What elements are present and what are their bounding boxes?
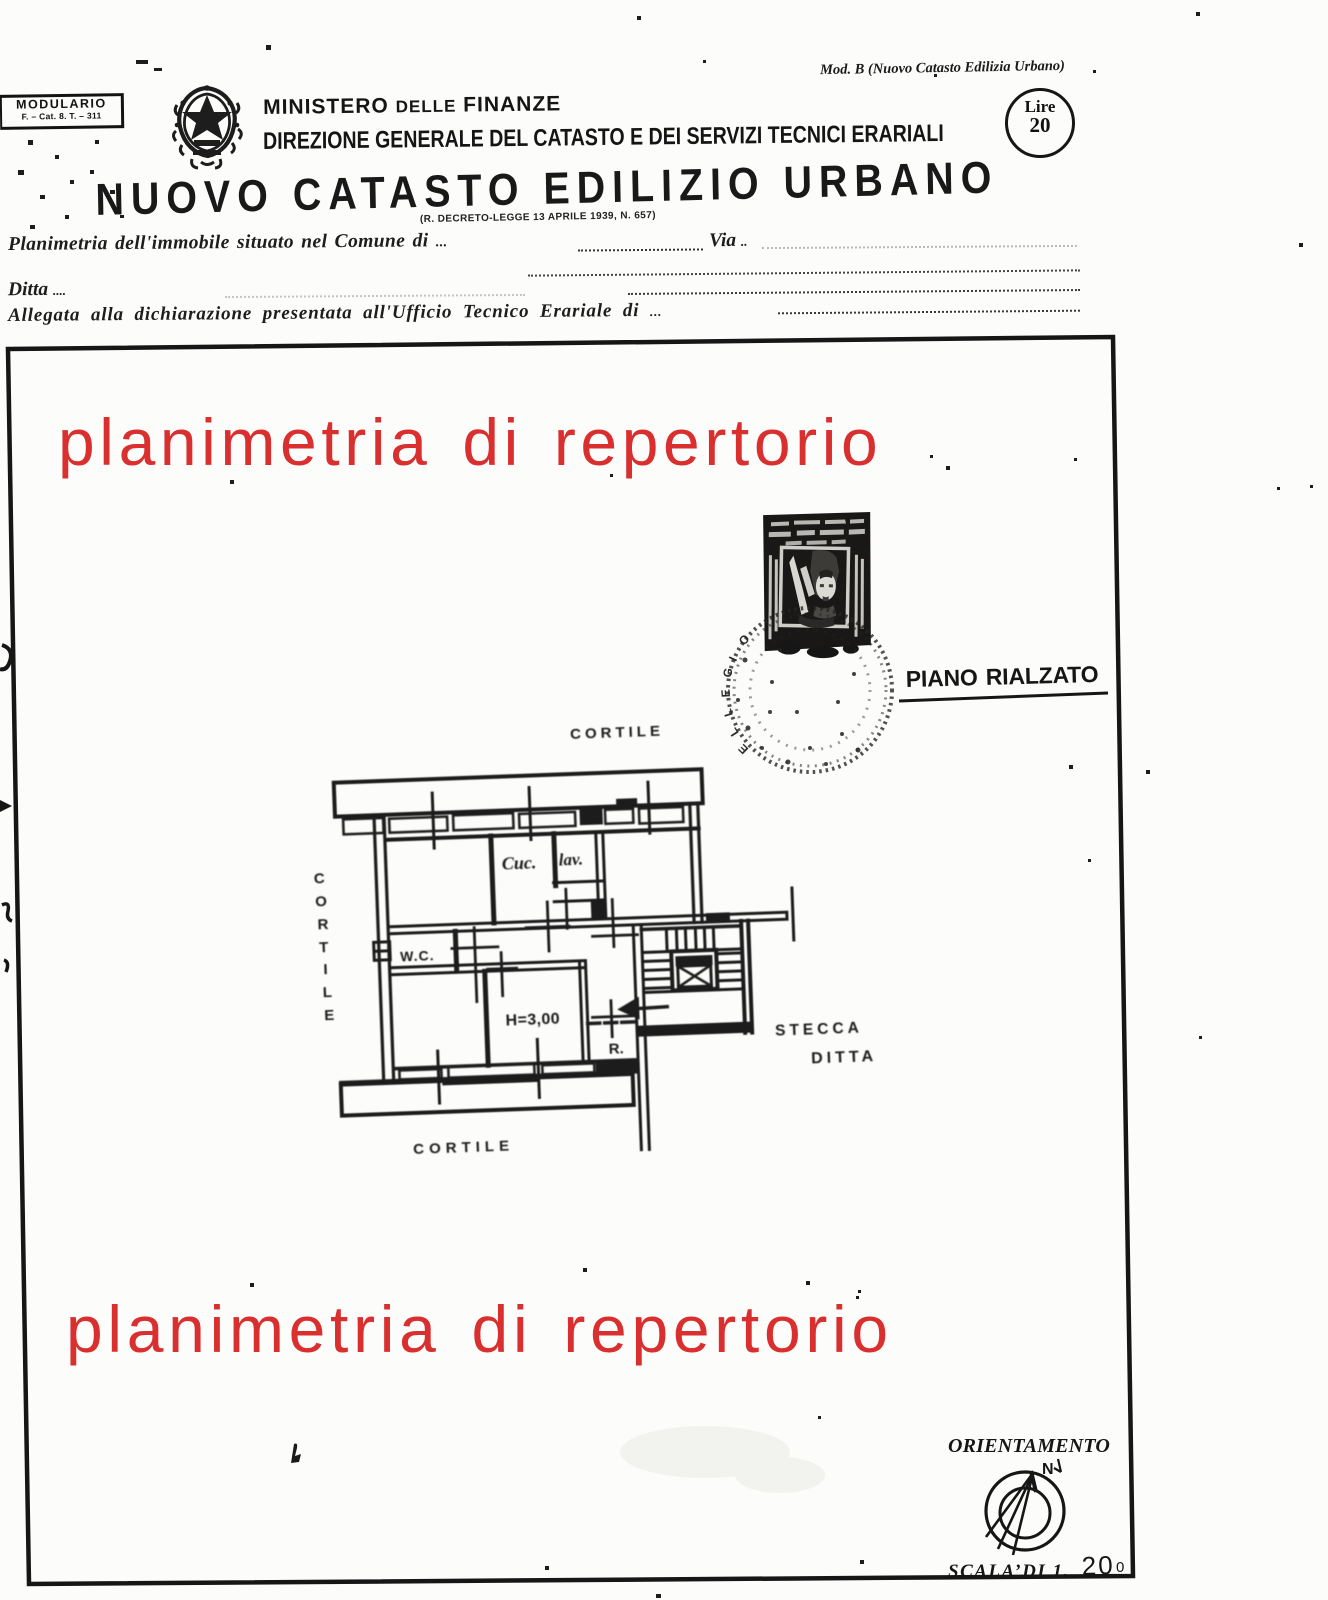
svg-text:CORTILE: CORTILE <box>570 723 664 743</box>
svg-text:E: E <box>324 1007 335 1024</box>
svg-text:I: I <box>323 961 328 978</box>
svg-text:R: R <box>317 916 329 933</box>
svg-text:DITTA: DITTA <box>811 1048 878 1067</box>
svg-text:O: O <box>315 893 328 910</box>
svg-text:L: L <box>726 725 742 739</box>
svg-text:STECCA: STECCA <box>775 1019 863 1039</box>
svg-text:E: E <box>736 741 751 757</box>
svg-text:PIANO RIALZATO: PIANO RIALZATO <box>905 661 1098 692</box>
svg-text:I: I <box>726 654 740 663</box>
svg-text:SCALA’DI 1.: SCALA’DI 1. <box>948 1561 1070 1582</box>
svg-text:E: E <box>718 689 733 698</box>
svg-text:R.: R. <box>608 1040 624 1058</box>
svg-text:CORTILE: CORTILE <box>413 1137 514 1158</box>
svg-text:T: T <box>319 939 329 956</box>
svg-text:ORIENTAMENTO: ORIENTAMENTO <box>948 1435 1110 1457</box>
svg-text:L: L <box>323 984 333 1001</box>
svg-text:W.C.: W.C. <box>400 947 435 964</box>
svg-text:20: 20 <box>1081 1550 1115 1581</box>
svg-text:G: G <box>720 667 735 679</box>
svg-text:C: C <box>314 870 326 887</box>
svg-text:H=3,00: H=3,00 <box>505 1011 560 1030</box>
svg-text:0: 0 <box>1116 1559 1124 1576</box>
svg-text:Cuc.: Cuc. <box>501 852 536 873</box>
svg-text:lav.: lav. <box>558 850 583 870</box>
